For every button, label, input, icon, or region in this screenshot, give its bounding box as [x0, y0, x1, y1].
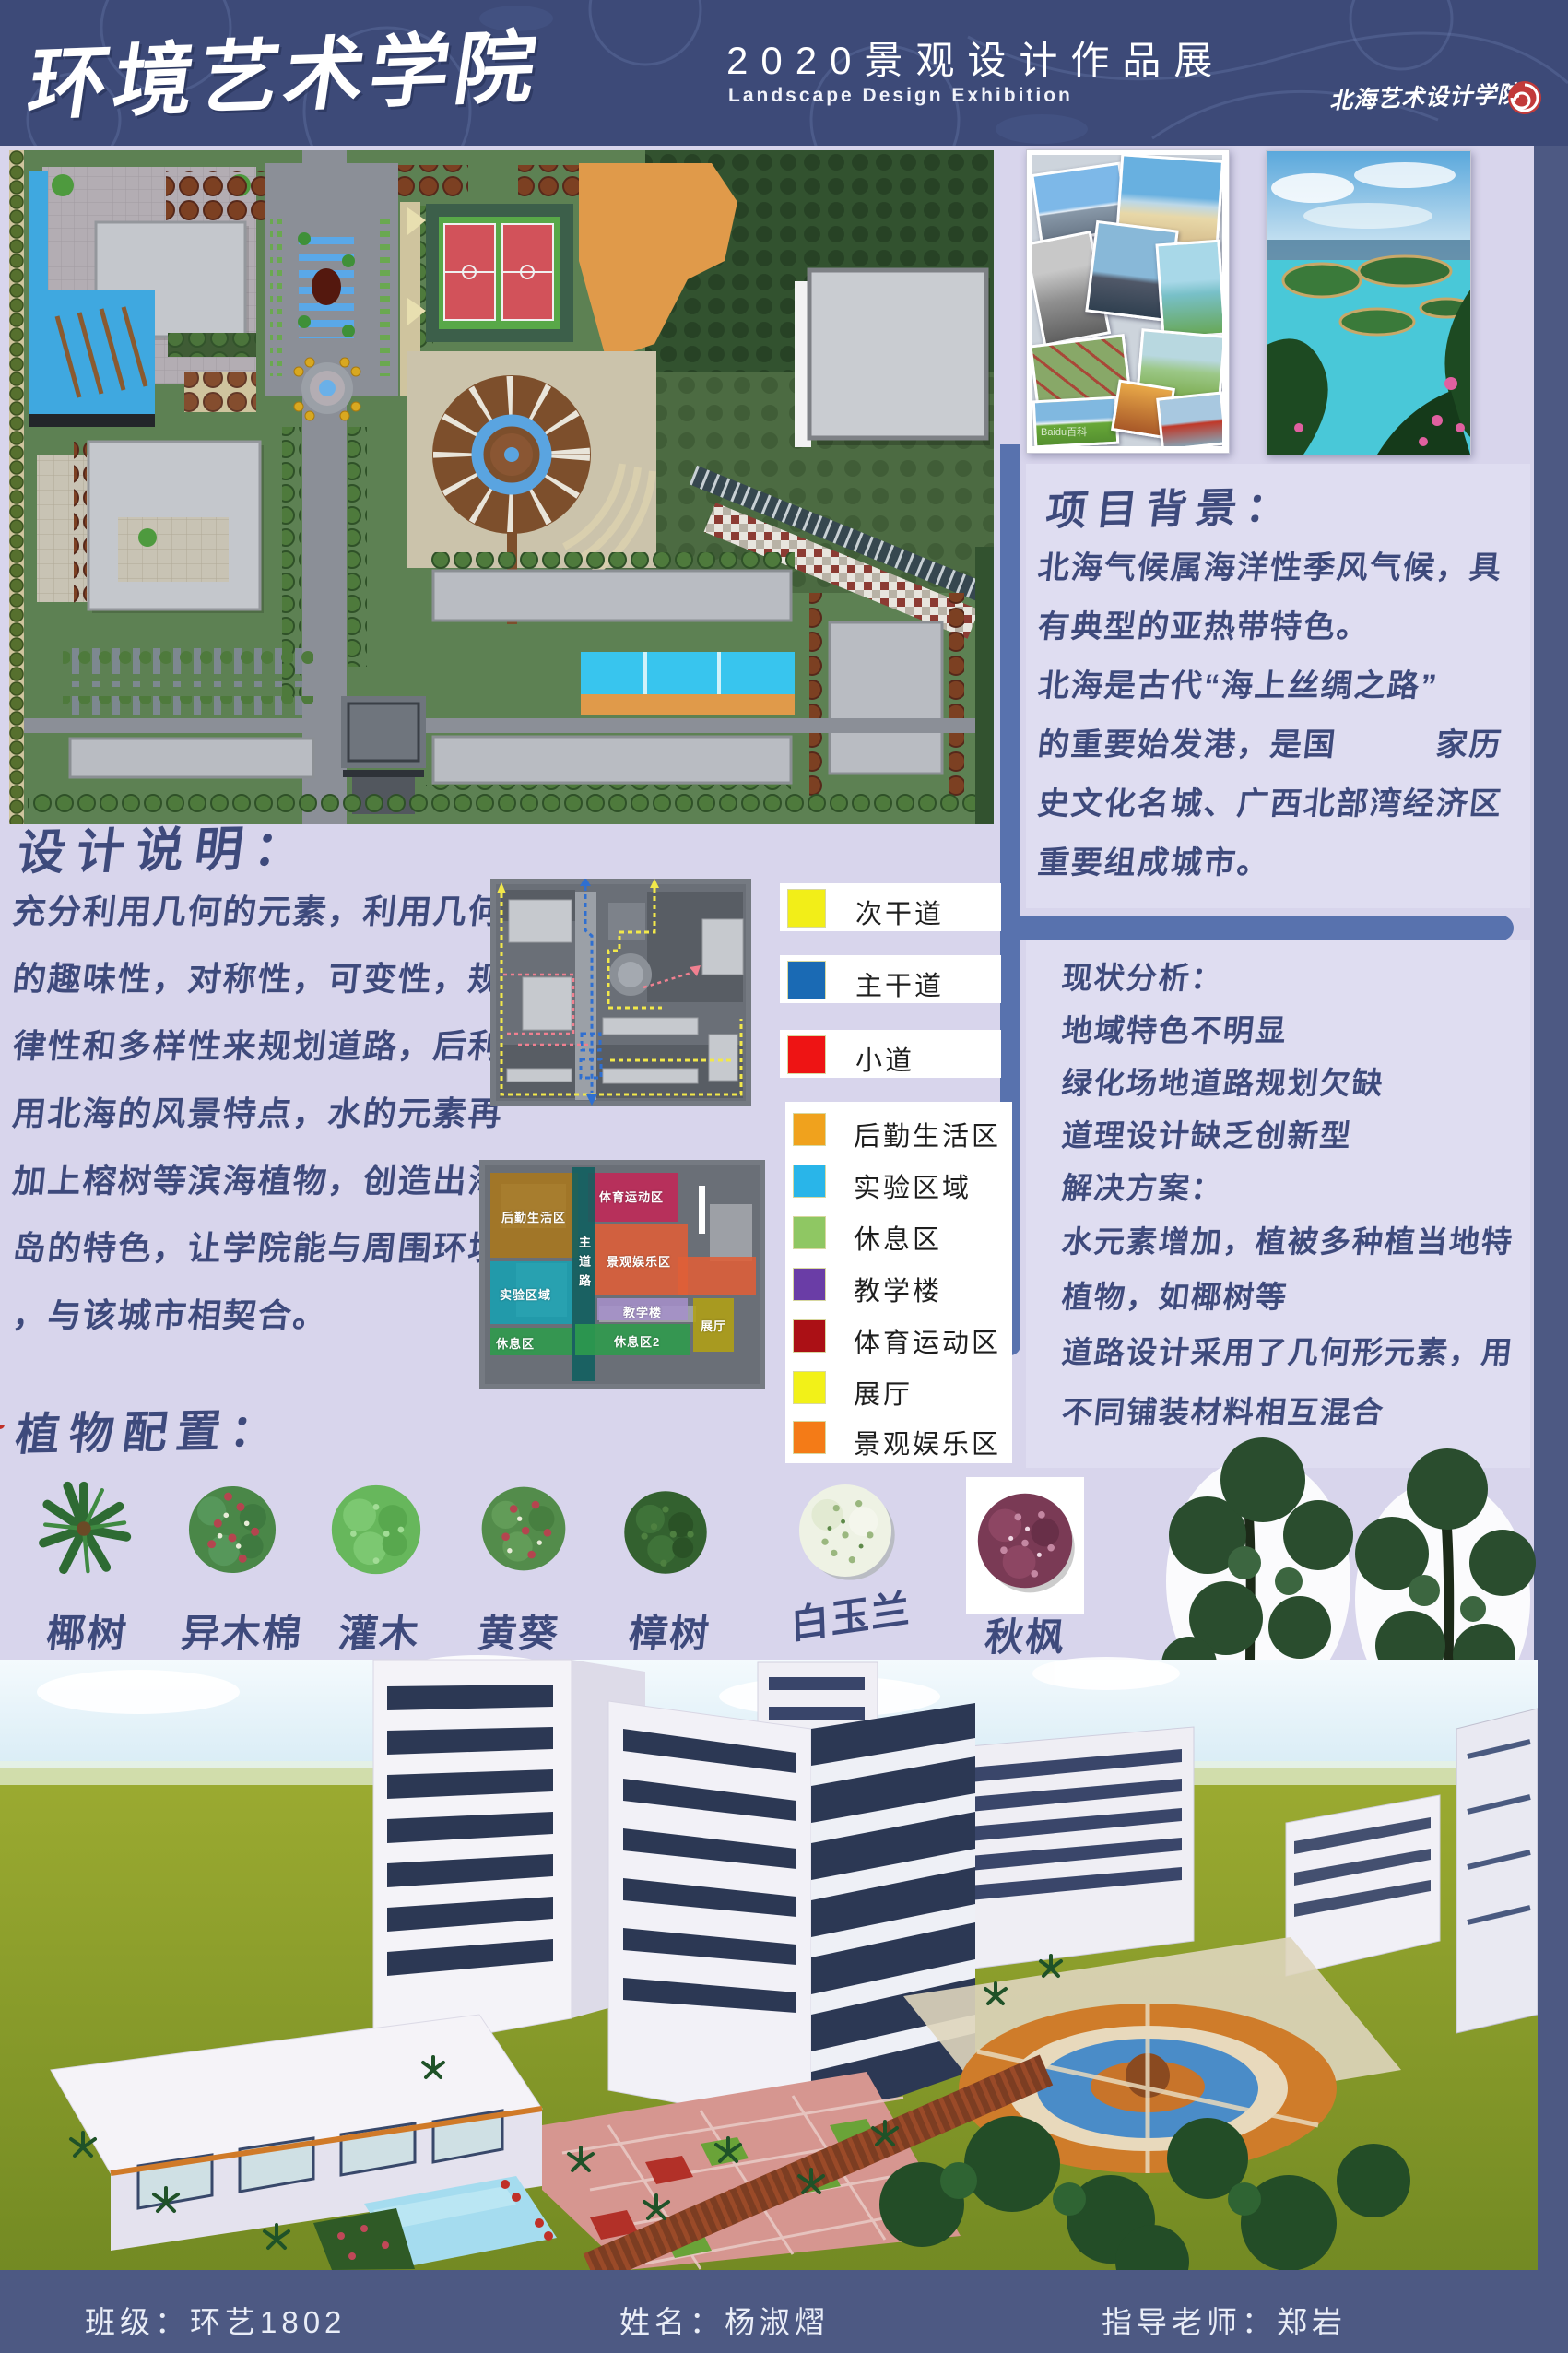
school-name: 北海艺术设计学院	[1328, 76, 1521, 115]
zone-label-exhibition: 展厅	[701, 1317, 726, 1334]
legend-label: 小道	[855, 1039, 914, 1078]
status-analysis-text: 现状分析： 地域特色不明显 绿化场地道路规划欠缺 道理设计缺乏创新型 解决方案：…	[1062, 952, 1523, 1445]
zone-label-rest2: 休息区2	[614, 1332, 660, 1350]
legend-swatch-path	[787, 1035, 826, 1074]
zone-label-logistics: 后勤生活区	[501, 1208, 566, 1225]
legend-label: 主干道	[855, 964, 944, 1003]
footer-bar: 班级：环艺1802 姓名：杨淑熠 指导老师：郑岩	[0, 2270, 1568, 2353]
student-name-label: 姓名：杨淑熠	[619, 2298, 830, 2342]
zone-label-lab: 实验区域	[500, 1285, 551, 1303]
legend-label: 次干道	[855, 893, 944, 931]
master-site-plan	[9, 150, 994, 824]
design-description-title: 设计说明：	[14, 809, 318, 883]
circulation-map	[490, 879, 751, 1106]
zone-label-rest1: 休息区	[496, 1334, 535, 1352]
legend-label: 展厅	[854, 1373, 913, 1412]
horizontal-accent-bar	[1020, 916, 1514, 940]
school-logo-swirl-icon	[1504, 77, 1545, 118]
legend-label: 教学楼	[854, 1270, 942, 1308]
legend-swatch-main-road	[787, 961, 826, 999]
zone-legend: 后勤生活区 实验区域 休息区 教学楼 体育运动区 展厅 景观娱乐区	[785, 1102, 1012, 1463]
legend-swatch-rest	[793, 1216, 826, 1249]
building-east	[795, 270, 990, 447]
teacher-label: 指导老师：郑岩	[1102, 2298, 1347, 2342]
exhibition-subtitle-en: Landscape Design Exhibition	[728, 85, 1073, 107]
photo-watermark: Baidu百科	[1041, 424, 1087, 439]
legend-label: 实验区域	[854, 1166, 972, 1205]
campus-render	[0, 1425, 1538, 2270]
class-label: 班级：环艺1802	[85, 2298, 346, 2342]
basketball-courts	[426, 204, 573, 342]
legend-swatch-lab	[793, 1165, 826, 1198]
zone-label-sports: 体育运动区	[599, 1188, 664, 1205]
scenic-lake-photo	[1266, 150, 1471, 455]
collage-photo-arch-bridge	[1156, 391, 1222, 446]
poster: 环境艺术学院 2020景观设计作品展 Landscape Design Exhi…	[0, 0, 1568, 2353]
legend-swatch-sports	[793, 1319, 826, 1353]
legend-label: 休息区	[854, 1218, 942, 1257]
photo-collage: Baidu百科	[1026, 149, 1230, 454]
project-background-title: 项目背景：	[1043, 474, 1300, 538]
design-description-text: 充分利用几何的元素，利用几何 的趣味性，对称性，可变性，规 律性和多样性来规划道…	[13, 878, 483, 1349]
zone-label-scenic: 景观娱乐区	[607, 1252, 671, 1270]
legend-label: 体育运动区	[854, 1321, 1001, 1360]
right-edge-band	[1534, 146, 1568, 2353]
exhibition-subtitle-cn: 2020景观设计作品展	[726, 30, 1225, 86]
legend-swatch-teaching	[793, 1268, 826, 1301]
header-bar: 环境艺术学院 2020景观设计作品展 Landscape Design Exhi…	[0, 0, 1568, 146]
collage-photo-coast	[1155, 240, 1222, 340]
poster-title: 环境艺术学院	[22, 2, 550, 135]
project-background-text: 北海气候属海洋性季风气候，具 有典型的亚热带特色。 北海是古代“海上丝绸之路” …	[1038, 538, 1527, 893]
zone-label-teaching: 教学楼	[623, 1303, 662, 1320]
legend-label: 后勤生活区	[854, 1115, 1001, 1153]
legend-swatch-secondary-road	[787, 889, 826, 928]
zoning-map: 后勤生活区 体育运动区 景观娱乐区 实验区域 主道路 教学楼 展厅 休息区 休息…	[479, 1160, 765, 1389]
zone-label-main-road: 主道路	[575, 1236, 593, 1318]
legend-swatch-exhibition	[793, 1371, 826, 1404]
legend-swatch-logistics	[793, 1113, 826, 1146]
